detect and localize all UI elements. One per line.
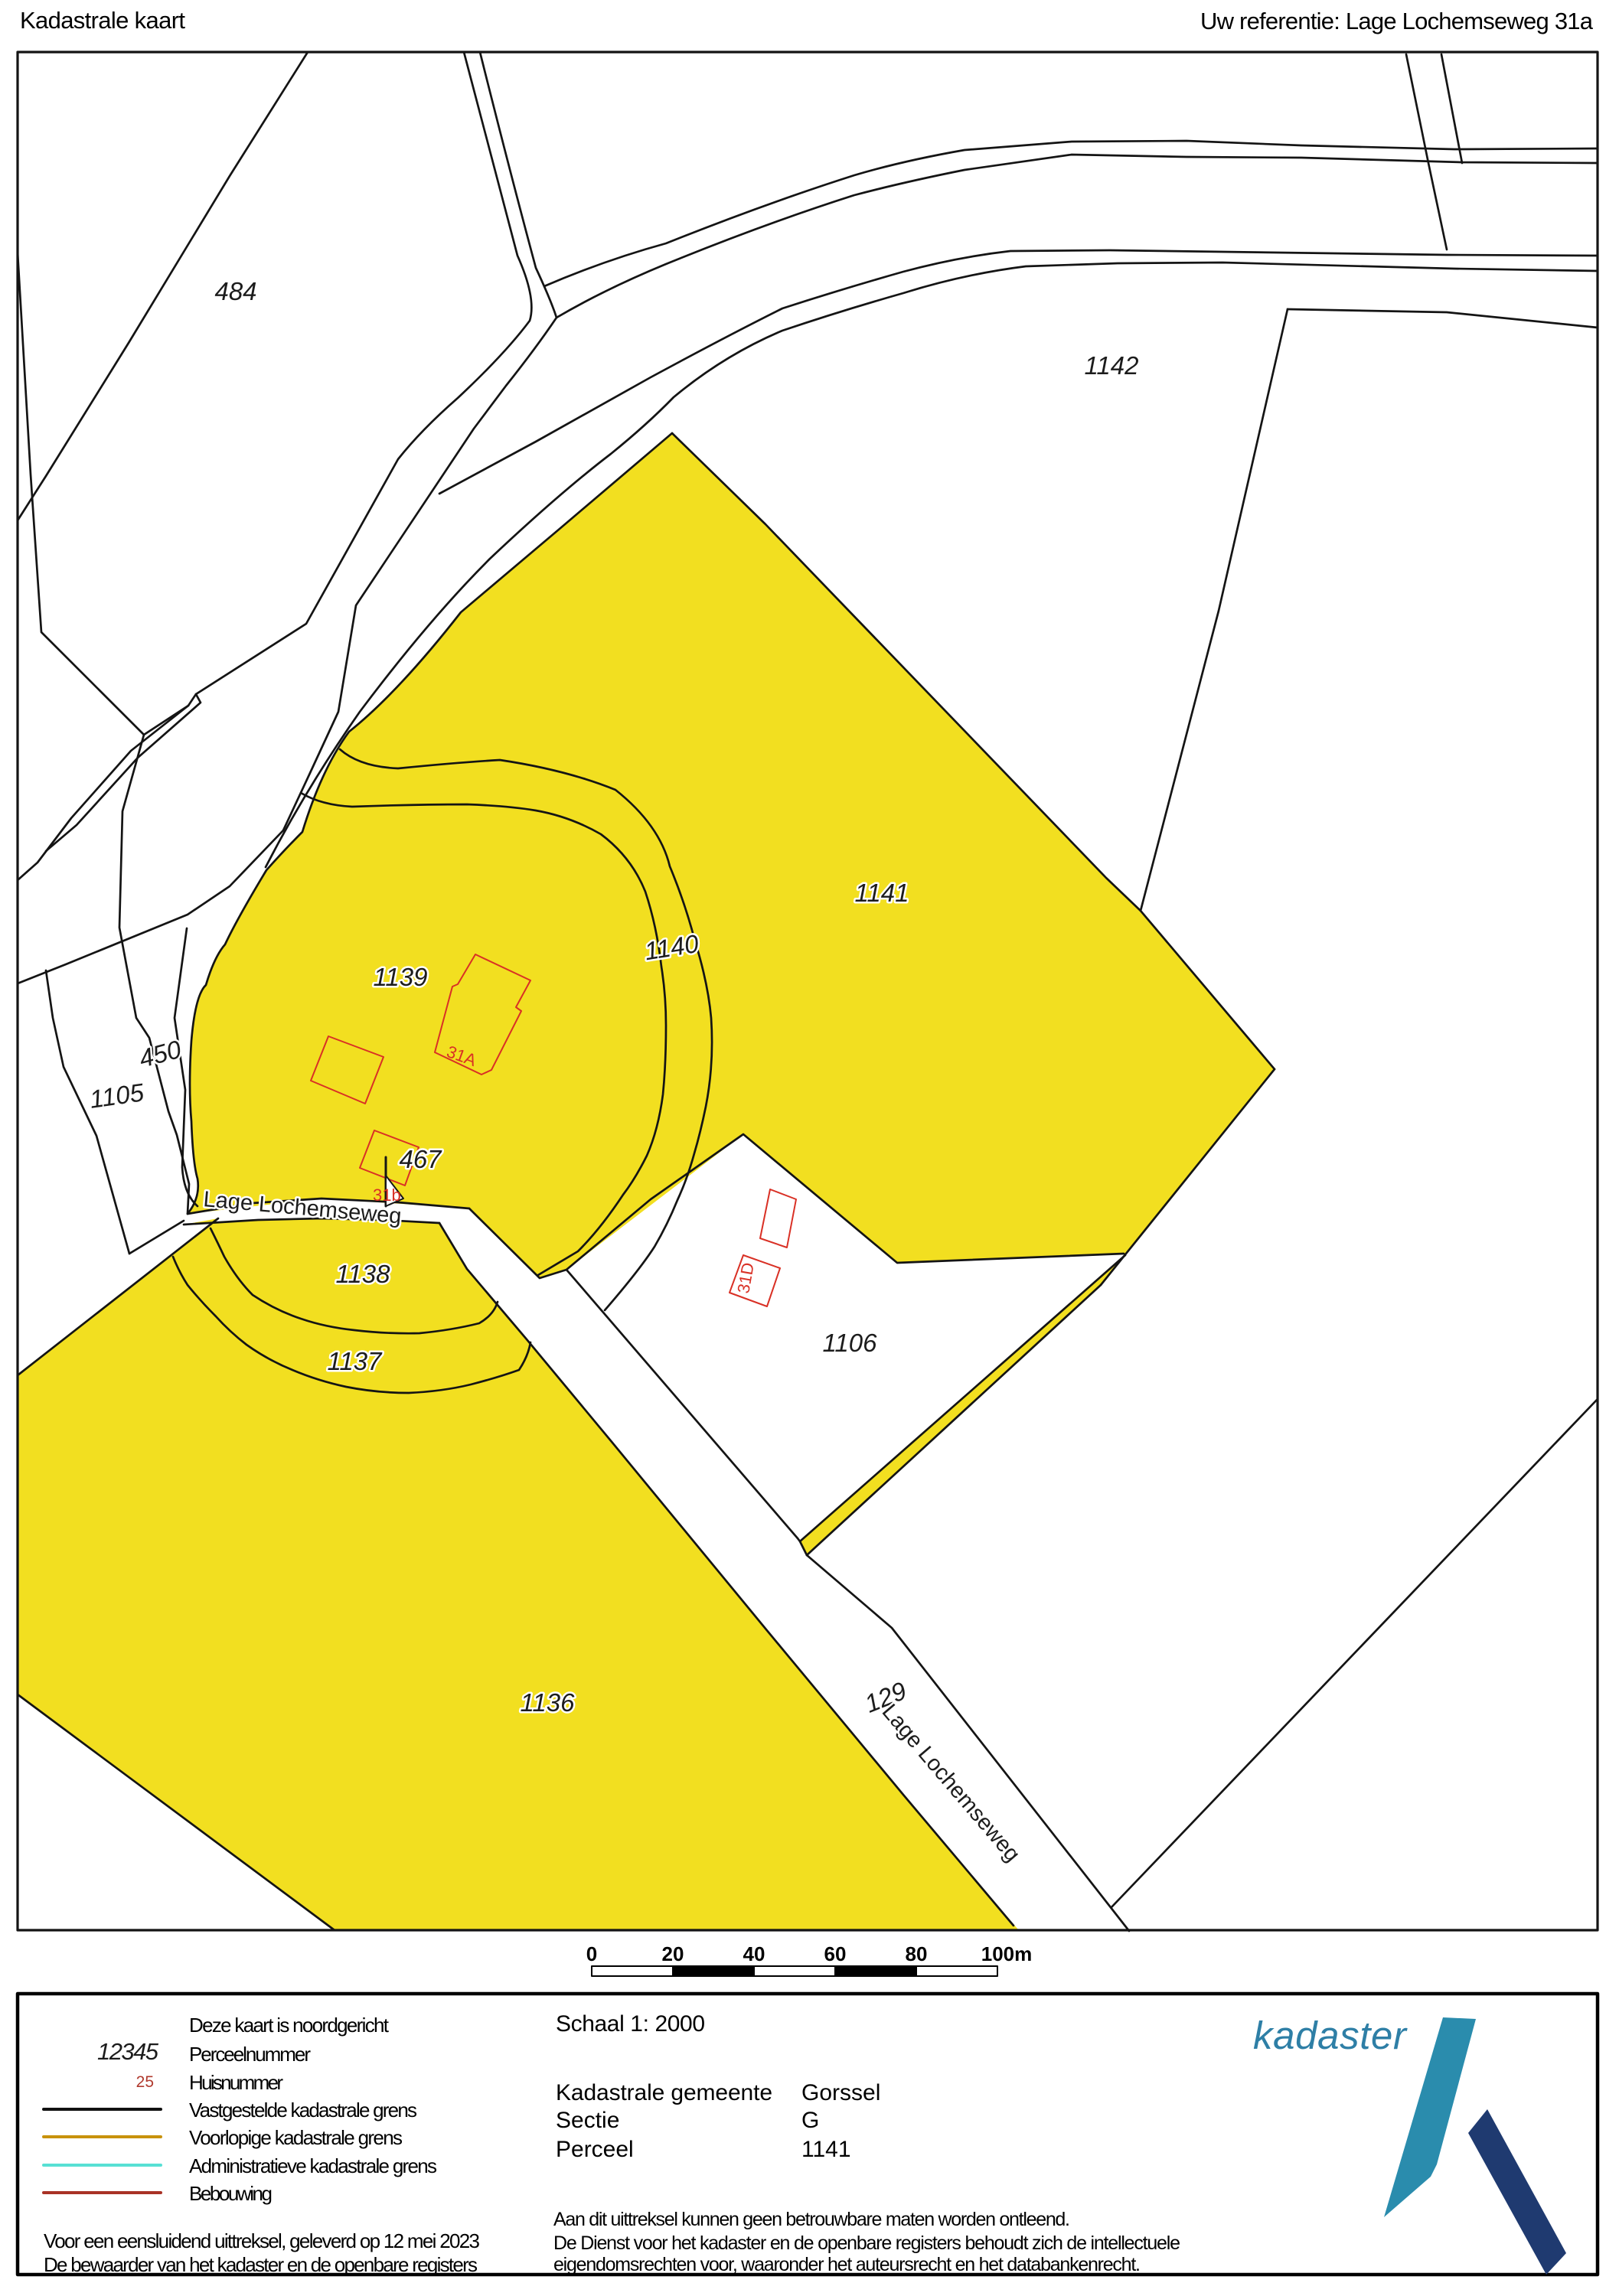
svg-text:31b: 31b <box>373 1186 401 1205</box>
svg-text:Voorlopige kadastrale grens: Voorlopige kadastrale grens <box>189 2126 403 2149</box>
svg-text:1141: 1141 <box>801 2137 851 2162</box>
svg-text:kadaster: kadaster <box>1253 2014 1408 2057</box>
svg-text:Perceelnummer: Perceelnummer <box>189 2043 311 2066</box>
svg-text:40: 40 <box>743 1942 765 1965</box>
svg-text:Schaal 1: 2000: Schaal 1: 2000 <box>556 2011 705 2037</box>
svg-text:60: 60 <box>824 1942 847 1965</box>
svg-text:G: G <box>801 2108 819 2133</box>
svg-text:1138: 1138 <box>336 1260 391 1288</box>
svg-text:Uw referentie: Lage Lochemsewe: Uw referentie: Lage Lochemseweg 31a <box>1200 8 1594 34</box>
svg-text:De bewaarder van het kadaster: De bewaarder van het kadaster en de open… <box>44 2253 478 2276</box>
svg-text:1142: 1142 <box>1085 351 1139 380</box>
svg-text:Gorssel: Gorssel <box>801 2080 880 2105</box>
svg-text:Vastgestelde kadastrale grens: Vastgestelde kadastrale grens <box>189 2099 417 2122</box>
svg-text:467: 467 <box>399 1145 442 1173</box>
svg-text:Voor een eensluidend uittrekse: Voor een eensluidend uittreksel, gelever… <box>44 2229 480 2252</box>
svg-text:25: 25 <box>136 2073 154 2091</box>
svg-text:Kadastrale kaart: Kadastrale kaart <box>20 7 185 34</box>
svg-text:Deze kaart is noordgericht: Deze kaart is noordgericht <box>189 2014 390 2037</box>
svg-text:100m: 100m <box>981 1942 1033 1965</box>
svg-text:Kadastrale gemeente: Kadastrale gemeente <box>556 2080 772 2105</box>
svg-text:Aan dit uittreksel kunnen geen: Aan dit uittreksel kunnen geen betrouwba… <box>553 2209 1070 2230</box>
svg-text:Huisnummer: Huisnummer <box>189 2071 283 2094</box>
svg-text:eigendomsrechten voor, waarond: eigendomsrechten voor, waaronder het aut… <box>553 2254 1141 2275</box>
svg-text:484: 484 <box>214 277 256 305</box>
svg-text:20: 20 <box>662 1942 684 1965</box>
svg-text:80: 80 <box>906 1942 928 1965</box>
svg-text:1141: 1141 <box>855 879 909 907</box>
svg-text:Bebouwing: Bebouwing <box>189 2182 273 2205</box>
svg-text:Perceel: Perceel <box>556 2137 634 2162</box>
svg-text:12345: 12345 <box>97 2038 159 2065</box>
svg-text:De Dienst voor het kadaster en: De Dienst voor het kadaster en de openba… <box>553 2232 1180 2254</box>
svg-text:Sectie: Sectie <box>556 2108 619 2133</box>
svg-text:1139: 1139 <box>374 963 428 991</box>
svg-text:1137: 1137 <box>328 1347 384 1375</box>
svg-text:1106: 1106 <box>823 1329 878 1357</box>
svg-text:0: 0 <box>586 1942 597 1965</box>
svg-text:Administratieve kadastrale gre: Administratieve kadastrale grens <box>189 2154 437 2177</box>
svg-text:1136: 1136 <box>521 1688 576 1717</box>
